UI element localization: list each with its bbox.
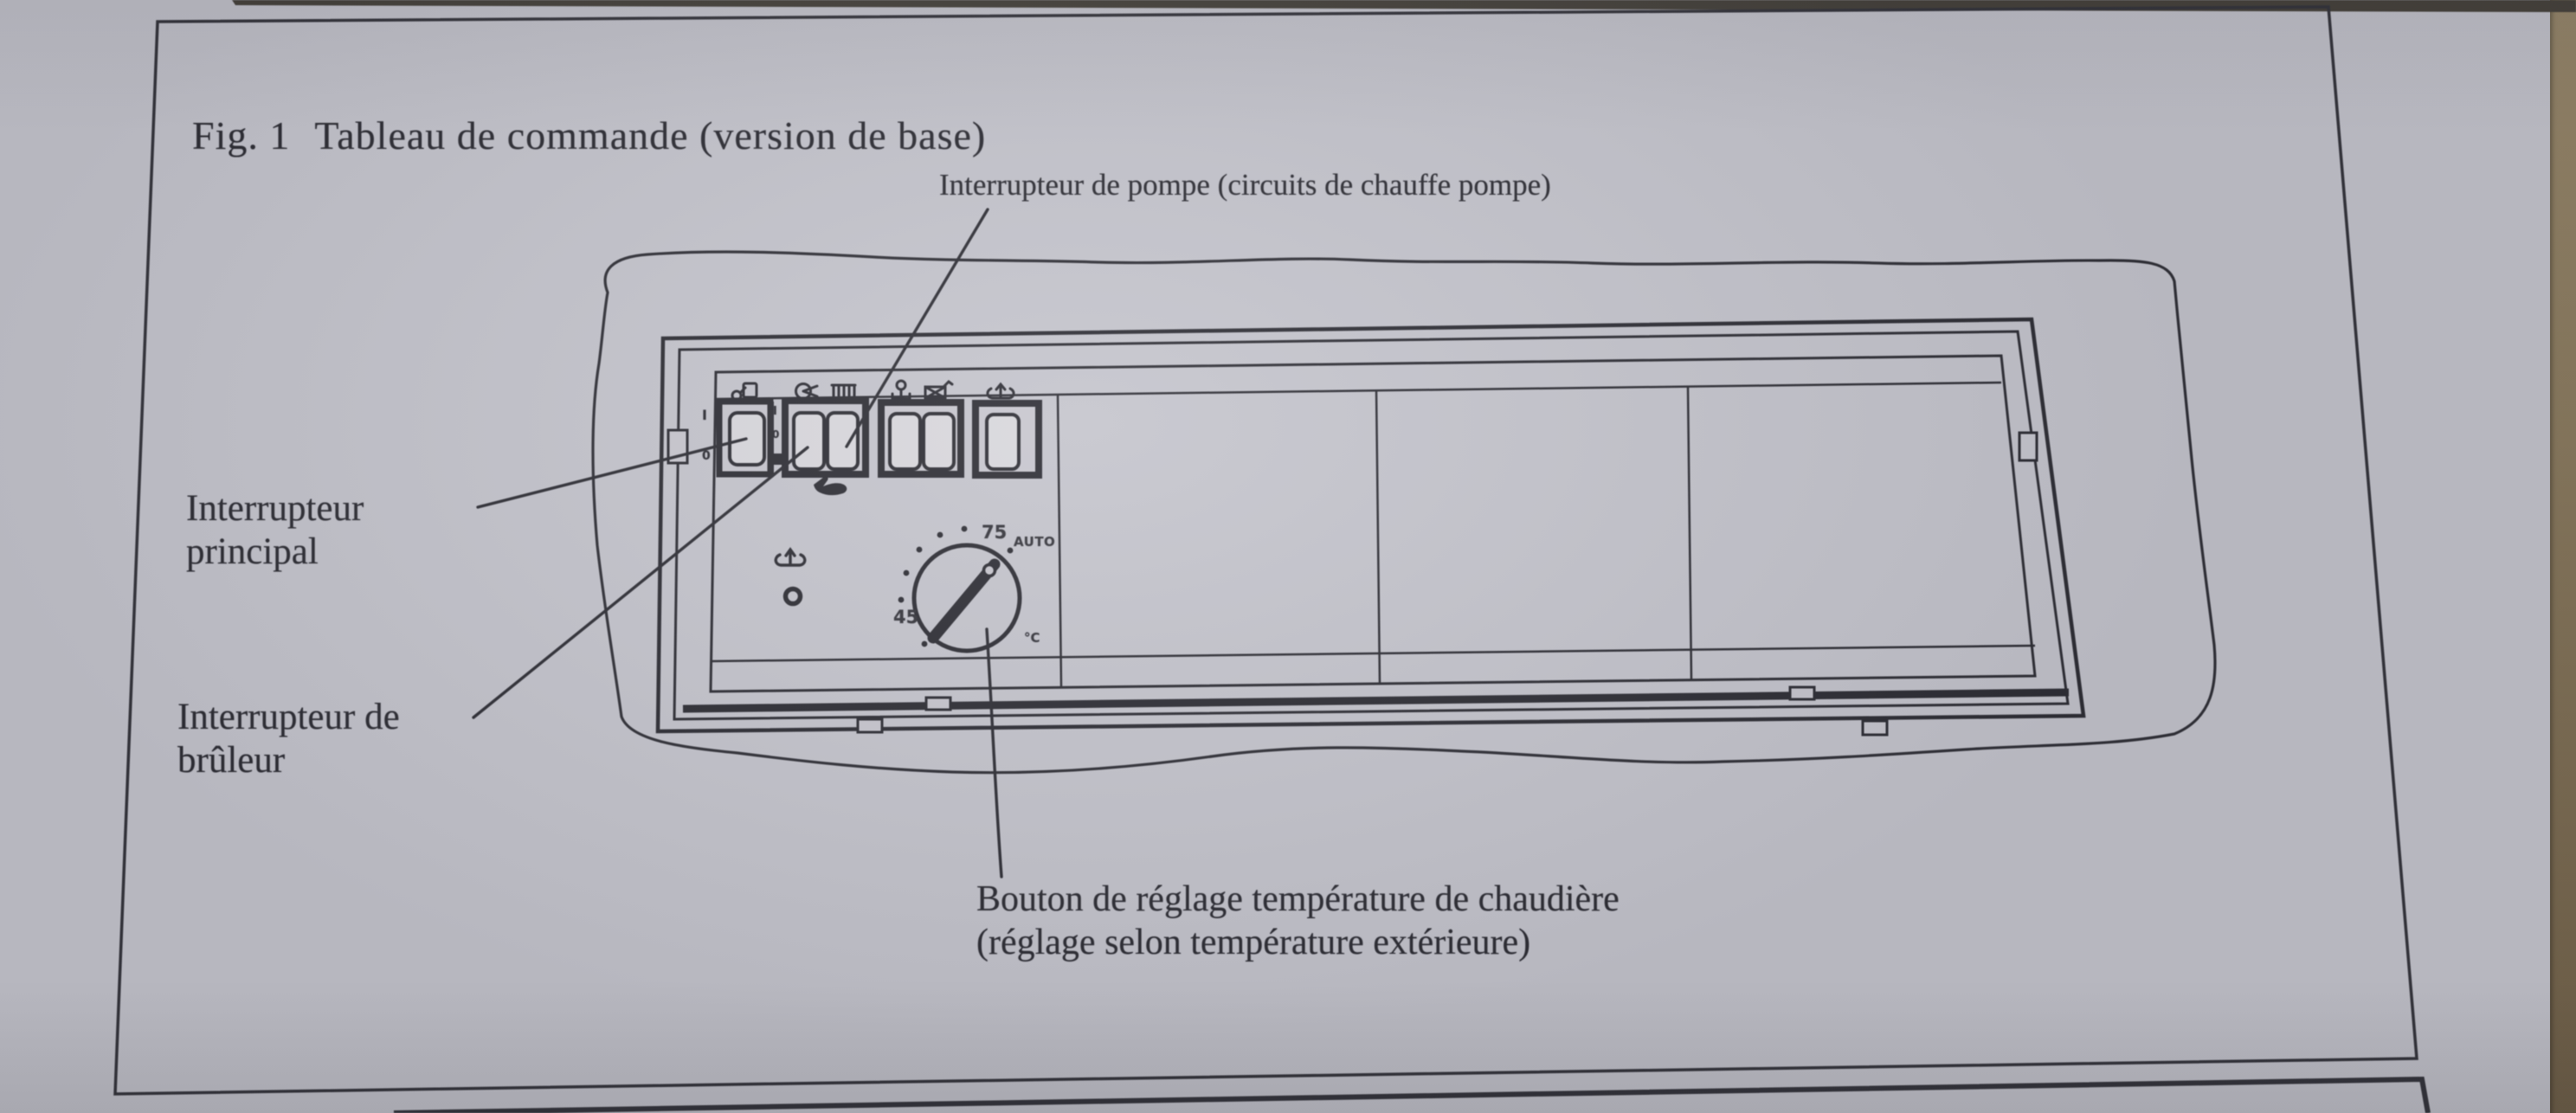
aux-square-mark (771, 454, 782, 465)
bottom-tab-4 (1863, 721, 1887, 735)
heating-rocker (828, 413, 858, 469)
pump-rocker (794, 413, 824, 469)
figure-title: Fig. 1 Tableau de commande (version de b… (192, 113, 986, 158)
callout-boiler-knob: Bouton de réglage température de chaudiè… (976, 878, 1620, 964)
leader-burner-switch (473, 447, 808, 717)
indicator-lamp-icon (786, 589, 801, 604)
leader-boiler-knob (987, 629, 1001, 877)
faceplate-divider-3 (1688, 387, 1691, 680)
probe-flue-rocker-block (881, 402, 961, 474)
dial-pointer-notch (984, 565, 995, 576)
switch-row (719, 401, 1039, 475)
aux-switch-on-mark: I (773, 405, 777, 418)
callout-pump-switch: Interrupteur de pompe (circuits de chauf… (939, 168, 1551, 203)
figure-title-text: Tableau de commande (version de base) (314, 113, 986, 158)
burner-switch-block (976, 403, 1039, 475)
photo-top-edge (232, 0, 2576, 12)
figure-number: Fig. 1 (192, 113, 290, 158)
dial-label-auto: AUTO (1014, 534, 1055, 550)
faceplate-divider-1 (1058, 395, 1061, 687)
radiator-icon (832, 385, 855, 397)
main-switch-off-mark: 0 (702, 449, 711, 463)
auto-position-dot (1008, 548, 1014, 554)
faceplate-divider-2 (1376, 390, 1380, 684)
photographed-manual-page: Fig. 1 Tableau de commande (version de b… (0, 0, 2576, 1113)
bottom-tab-3 (1790, 687, 1814, 699)
leader-lines (473, 209, 1001, 877)
pump-icon (796, 384, 818, 399)
boiler-temperature-icon-large (776, 550, 805, 565)
right-clip (2019, 433, 2037, 460)
panel-frame (658, 319, 2083, 731)
callout-main-switch: Interrupteur principal (186, 487, 364, 574)
dial-side-symbols (776, 550, 805, 604)
power-plug-icon (732, 383, 757, 400)
dial-label-unit: °C (1024, 630, 1040, 646)
dial-label-max: 75 (982, 522, 1007, 543)
callout-burner-switch: Interrupteur de brûleur (177, 696, 400, 782)
bottom-tab-2 (858, 719, 882, 732)
dial-label-min: 45 (893, 607, 918, 627)
main-switch-on-mark: I (702, 407, 707, 423)
boiler-temperature-dial (898, 526, 1020, 651)
aux-switch-off-mark: 0 (772, 428, 779, 441)
bottom-tab-1 (926, 698, 950, 710)
faceplate-bottom-inner-line (711, 646, 2035, 661)
hand-pointer-icon (814, 476, 847, 495)
